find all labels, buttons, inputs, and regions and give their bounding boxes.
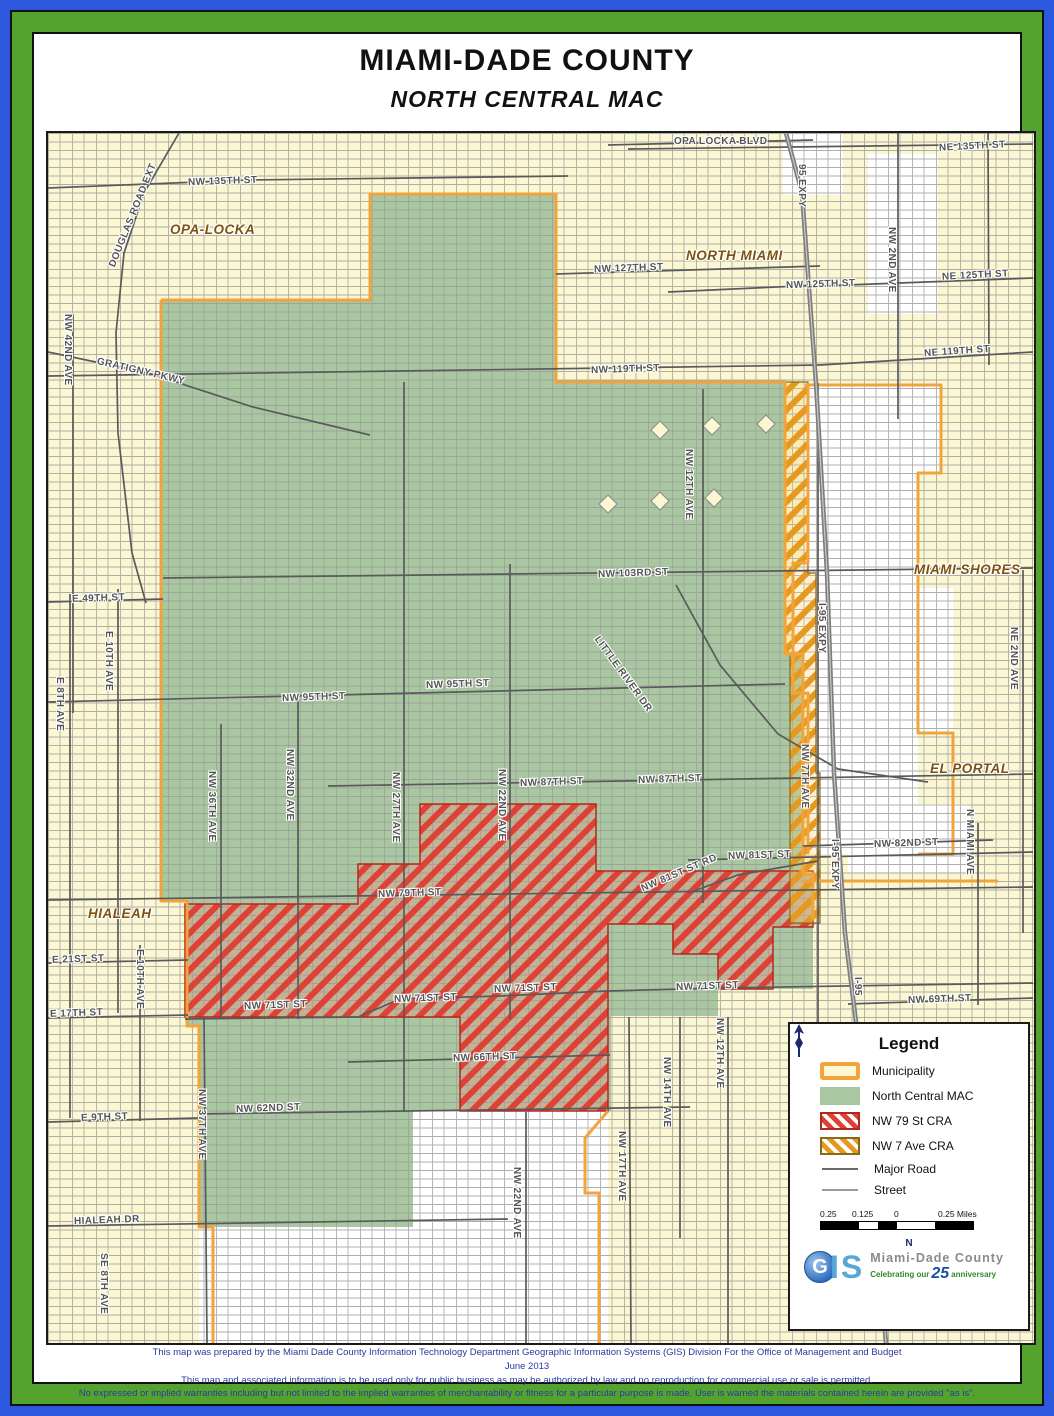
street-label: E 49TH ST	[72, 593, 125, 605]
disclaimer-line: This map and associated information is t…	[34, 1374, 1020, 1388]
north-arrow: N	[790, 1239, 1028, 1249]
street-label: NW 7TH AVE	[799, 744, 809, 809]
city-label: NORTH MIAMI	[686, 249, 783, 263]
street-label: NW 27TH AVE	[390, 772, 400, 843]
legend-item-label: Street	[874, 1183, 906, 1197]
legend-item-mac: North Central MAC	[820, 1087, 1028, 1105]
disclaimer: This map was prepared by the Miami Dade …	[34, 1346, 1020, 1401]
legend-item-label: North Central MAC	[872, 1089, 973, 1103]
street-label: E 21ST ST	[52, 954, 105, 966]
street-label: NW 22ND AVE	[496, 769, 506, 841]
city-label: OPA-LOCKA	[170, 223, 255, 237]
north-label: N	[790, 1239, 1028, 1249]
legend-item-street: Street	[820, 1183, 1028, 1197]
scale-bar-segments	[820, 1221, 974, 1230]
mac-swatch	[820, 1087, 860, 1105]
street-label: NW 12TH AVE	[714, 1018, 724, 1089]
legend-item-cra7ave: NW 7 Ave CRA	[820, 1137, 1028, 1155]
scale-tick: 0	[894, 1209, 899, 1219]
scale-tick: 0.25	[820, 1209, 837, 1219]
legend-title: Legend	[790, 1034, 1028, 1054]
disclaimer-line: June 2013	[34, 1360, 1020, 1374]
street-label: NW 14TH AVE	[661, 1057, 671, 1128]
tagline-num: 25	[931, 1265, 949, 1283]
municipality-swatch	[820, 1062, 860, 1080]
legend-item-label: Municipality	[872, 1064, 935, 1078]
street-label: OPA LOCKA BLVD	[674, 137, 767, 147]
gis-logo: G IS Miami-Dade County Celebrating our 2…	[804, 1251, 1028, 1283]
street-label: NW 22ND AVE	[511, 1167, 521, 1239]
street-label: NW 2ND AVE	[886, 227, 896, 293]
street-label: NW 32ND AVE	[284, 749, 294, 821]
legend-item-label: Major Road	[874, 1162, 936, 1176]
street-label: E 10TH AVE	[134, 949, 144, 1009]
logo-tagline: Celebrating our 25 anniversary	[870, 1265, 1004, 1283]
logo-text: Miami-Dade County Celebrating our 25 ann…	[870, 1251, 1004, 1283]
page-title: MIAMI-DADE COUNTY	[34, 44, 1020, 78]
street-label: E 17TH ST	[50, 1008, 103, 1020]
street-label: NW 12TH AVE	[683, 449, 693, 520]
highway-label: I-95 EXPY	[816, 603, 826, 653]
legend-item-label: NW 7 Ave CRA	[872, 1139, 954, 1153]
map-area: OPA-LOCKA NORTH MIAMI MIAMI SHORES EL PO…	[46, 131, 1036, 1345]
street-label: SE 8TH AVE	[98, 1253, 108, 1314]
page-subtitle: NORTH CENTRAL MAC	[34, 86, 1020, 113]
cra79-swatch	[820, 1112, 860, 1130]
logo-org: Miami-Dade County	[870, 1251, 1004, 1265]
highway-label: 95 EXPY	[796, 164, 806, 207]
major-road-swatch	[822, 1168, 858, 1170]
tagline-pre: Celebrating our	[870, 1270, 929, 1279]
street-label: NW 17TH AVE	[616, 1131, 626, 1202]
city-label: EL PORTAL	[930, 762, 1010, 776]
street-swatch	[822, 1189, 858, 1191]
legend-item-cra79: NW 79 St CRA	[820, 1112, 1028, 1130]
north-arrow-icon	[790, 1024, 808, 1058]
disclaimer-line: No expressed or implied warranties inclu…	[34, 1387, 1020, 1401]
outer-green-frame: MIAMI-DADE COUNTY NORTH CENTRAL MAC	[10, 10, 1044, 1406]
street-label: E 10TH AVE	[103, 631, 113, 691]
street-label: E 8TH AVE	[54, 677, 64, 731]
street-label: N MIAMI AVE	[964, 809, 974, 875]
street-label: E 9TH ST	[81, 1112, 128, 1124]
map-sheet: MIAMI-DADE COUNTY NORTH CENTRAL MAC	[32, 32, 1022, 1384]
legend-item-label: NW 79 St CRA	[872, 1114, 952, 1128]
scale-bar: 0.25 0.125 0 0.25 Miles	[820, 1209, 990, 1235]
city-label: MIAMI SHORES	[914, 563, 1021, 577]
city-label: HIALEAH	[88, 907, 152, 921]
highway-label: I-95 EXPY	[829, 839, 839, 889]
highway-label: I-95	[852, 977, 862, 996]
legend: Legend Municipality North Central MAC NW…	[788, 1022, 1030, 1331]
street-label: NE 2ND AVE	[1008, 627, 1018, 690]
street-label: NW 37TH AVE	[196, 1089, 206, 1160]
scale-tick: 0.25 Miles	[938, 1209, 977, 1219]
gis-letters: IS	[830, 1253, 864, 1282]
tagline-post: anniversary	[951, 1270, 996, 1279]
scale-tick: 0.125	[852, 1209, 873, 1219]
cra7ave-swatch	[820, 1137, 860, 1155]
street-label: NW 42ND AVE	[62, 314, 72, 386]
map-header: MIAMI-DADE COUNTY NORTH CENTRAL MAC	[34, 44, 1020, 113]
legend-item-municipality: Municipality	[820, 1062, 1028, 1080]
legend-item-major-road: Major Road	[820, 1162, 1028, 1176]
street-label: NW 36TH AVE	[206, 771, 216, 842]
disclaimer-line: This map was prepared by the Miami Dade …	[34, 1346, 1020, 1360]
